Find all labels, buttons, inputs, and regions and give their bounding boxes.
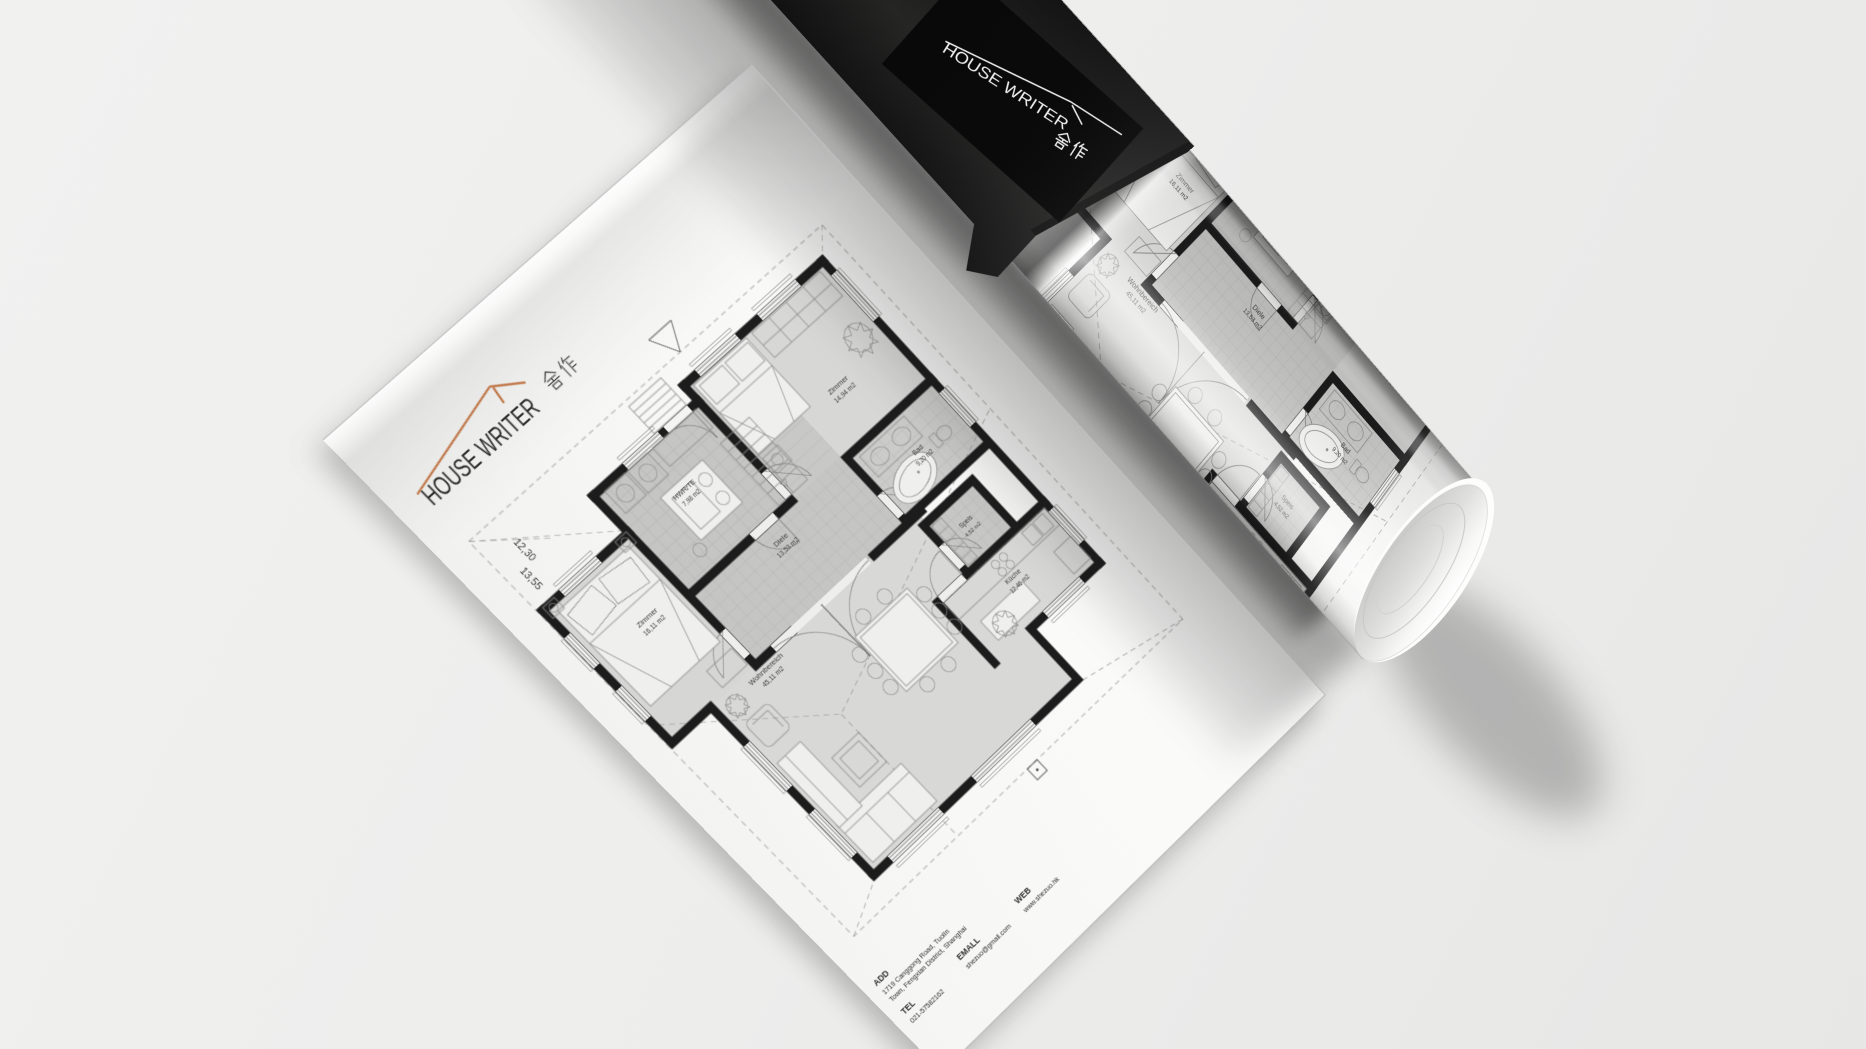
svg-text:HOUSE WRITER: HOUSE WRITER: [415, 392, 545, 511]
